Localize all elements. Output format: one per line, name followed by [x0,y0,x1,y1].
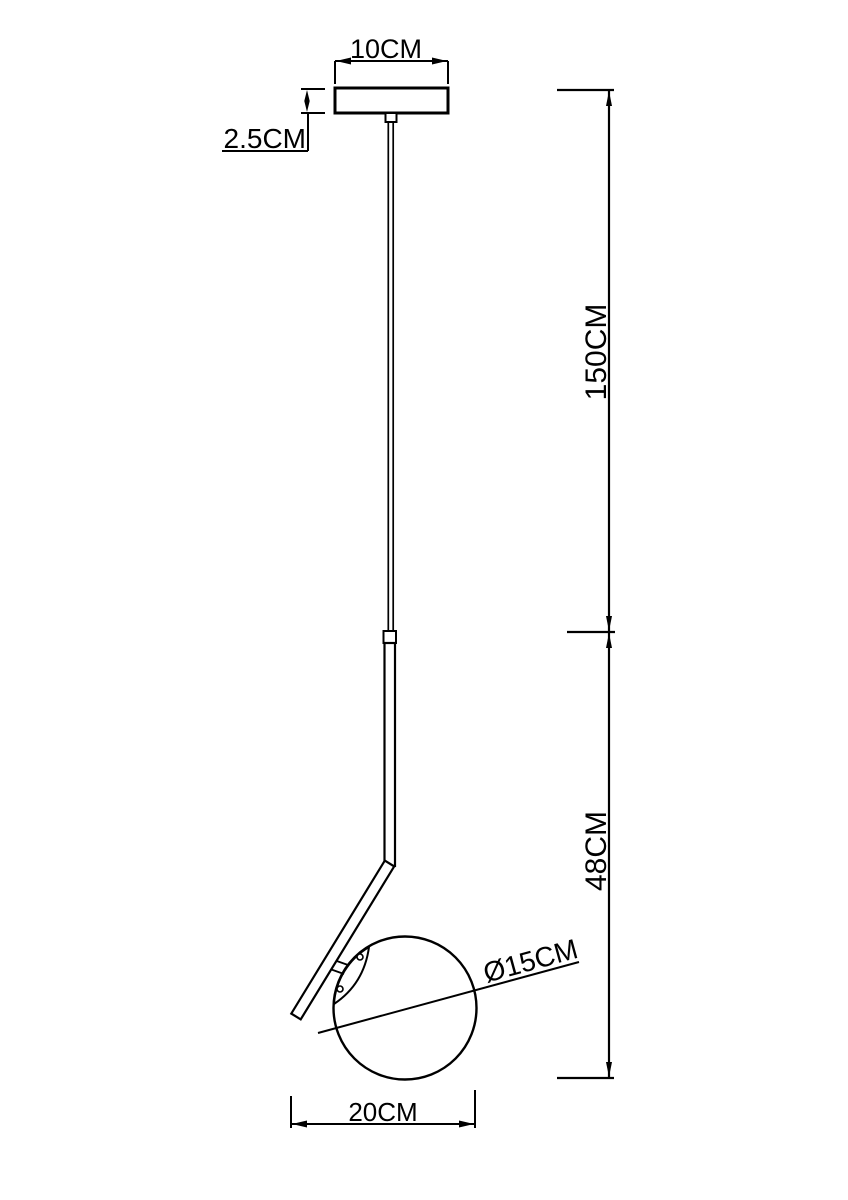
arrow-down-icon [304,101,309,112]
arrow-right-icon [459,1121,474,1128]
dim-canopy-width-label: 10CM [350,34,422,64]
arrow-right-icon [432,58,447,65]
mounting-screw-bottom [337,986,343,992]
arrow-down-icon [606,1062,612,1077]
cable-connector [384,631,397,643]
pendant-lamp-dimension-drawing: 10CM 2.5CM 150CM 48CM Ø15CM 20CM [0,0,848,1200]
mounting-screw-top [357,954,363,960]
dim-canopy-width: 10CM [335,34,448,84]
dim-canopy-height-label: 2.5CM [224,123,306,154]
dim-canopy-height: 2.5CM [222,89,325,154]
dim-suspension-length-label: 150CM [580,304,613,401]
arrow-down-icon [606,616,612,631]
dim-overall-width-label: 20CM [348,1097,417,1127]
dim-right-column: 150CM 48CM [557,90,615,1078]
canopy-stem [386,113,397,122]
arrow-left-icon [336,58,351,65]
arrow-up-icon [606,633,612,648]
dim-body-height-label: 48CM [580,811,613,891]
dim-overall-width: 20CM [291,1090,475,1128]
ceiling-canopy [335,88,448,113]
arrow-up-icon [304,90,309,101]
lamp-fixture [291,88,476,1080]
arrow-up-icon [606,91,612,106]
vertical-rod [385,643,396,866]
dim-globe-diameter-label: Ø15CM [480,933,581,988]
arrow-left-icon [292,1121,307,1128]
